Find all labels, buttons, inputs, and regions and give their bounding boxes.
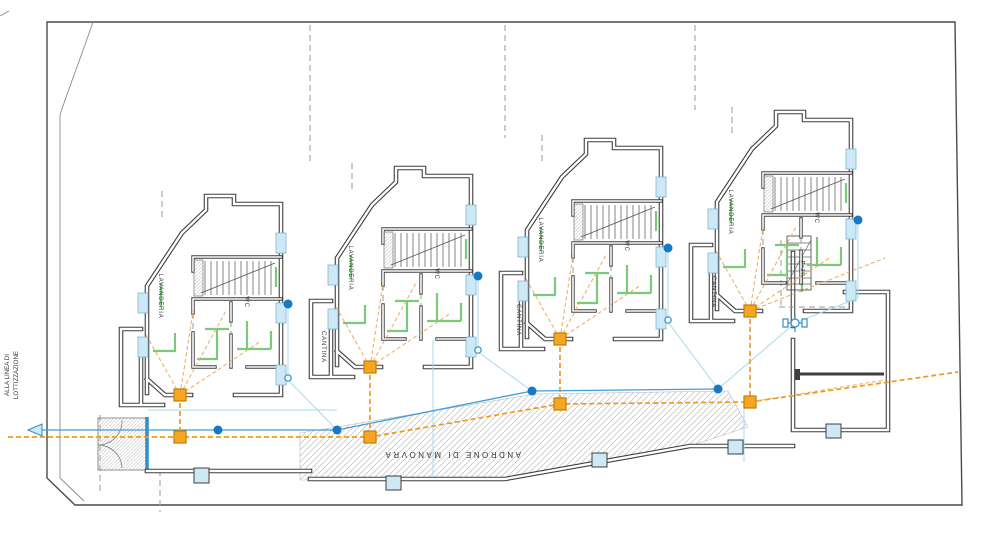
water-node bbox=[854, 216, 863, 225]
lot-line-text-2: LOTTIZZAZIONE bbox=[13, 351, 20, 399]
cellar-label: CANTINA bbox=[710, 276, 716, 308]
unit-2 bbox=[311, 163, 476, 377]
valve-node bbox=[665, 317, 671, 323]
manhole-node bbox=[364, 361, 376, 373]
cellar-label: CANTINA bbox=[515, 304, 521, 336]
service-yard bbox=[779, 253, 888, 430]
wc-label: WC bbox=[623, 240, 629, 252]
laundry-label: LAVANDERIA bbox=[347, 245, 353, 290]
maneuver-court-label: ANDRONE DI MANOVRA bbox=[383, 450, 521, 459]
wc-label: WC bbox=[243, 296, 249, 308]
water-node bbox=[714, 385, 723, 394]
unit-3 bbox=[501, 135, 666, 349]
water-node bbox=[474, 272, 483, 281]
hydrant-symbol bbox=[783, 314, 807, 332]
water-node bbox=[333, 426, 342, 435]
floor-plan-canvas: ANDRONE DI MANOVRA bbox=[0, 0, 1000, 559]
water-node bbox=[214, 426, 223, 435]
valve-node bbox=[475, 347, 481, 353]
lot-line-annotation: ALLA LINEA DI LOTTIZZAZIONE bbox=[4, 351, 20, 399]
water-node bbox=[284, 300, 293, 309]
valve-node bbox=[285, 375, 291, 381]
manhole-node bbox=[364, 431, 376, 443]
water-node bbox=[664, 244, 673, 253]
unit-1 bbox=[121, 191, 286, 405]
manhole-node bbox=[174, 389, 186, 401]
lot-division-lines bbox=[310, 25, 695, 165]
wc-label: WC bbox=[433, 268, 439, 280]
manhole-node bbox=[744, 396, 756, 408]
manhole-node bbox=[554, 398, 566, 410]
lot-line-text-1: ALLA LINEA DI bbox=[4, 354, 11, 396]
wc-label: WC bbox=[813, 212, 819, 224]
entrance-gate bbox=[98, 417, 147, 472]
water-node bbox=[528, 387, 537, 396]
room-labels: LAVANDERIA LAVANDERIA LAVANDERIA LAVANDE… bbox=[157, 189, 819, 363]
slope-label: P=2% bbox=[799, 261, 805, 278]
manhole-node bbox=[744, 305, 756, 317]
cellar-label: CANTINA bbox=[320, 331, 326, 363]
edge-tick bbox=[0, 11, 9, 16]
laundry-label: LAVANDERIA bbox=[537, 217, 543, 262]
flow-arrow bbox=[28, 424, 42, 436]
site-plan-page: ANDRONE DI MANOVRA bbox=[0, 0, 1000, 559]
laundry-label: LAVANDERIA bbox=[727, 189, 733, 234]
manhole-node bbox=[554, 333, 566, 345]
laundry-label: LAVANDERIA bbox=[157, 273, 163, 318]
manhole-node bbox=[174, 431, 186, 443]
